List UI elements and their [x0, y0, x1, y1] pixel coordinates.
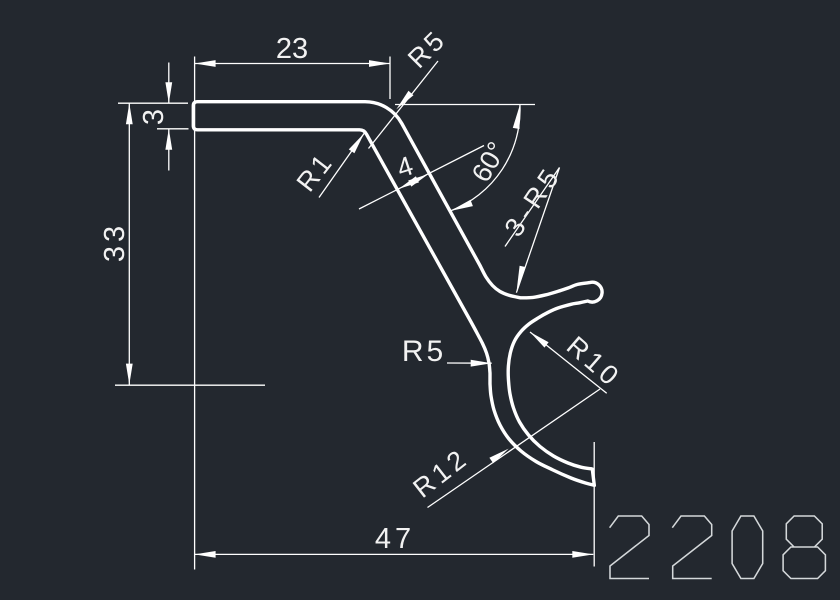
svg-text:23: 23 — [276, 33, 308, 65]
svg-text:33: 33 — [99, 222, 131, 262]
svg-text:3: 3 — [138, 109, 170, 125]
svg-text:47: 47 — [375, 523, 415, 555]
svg-text:R5: R5 — [402, 335, 446, 368]
